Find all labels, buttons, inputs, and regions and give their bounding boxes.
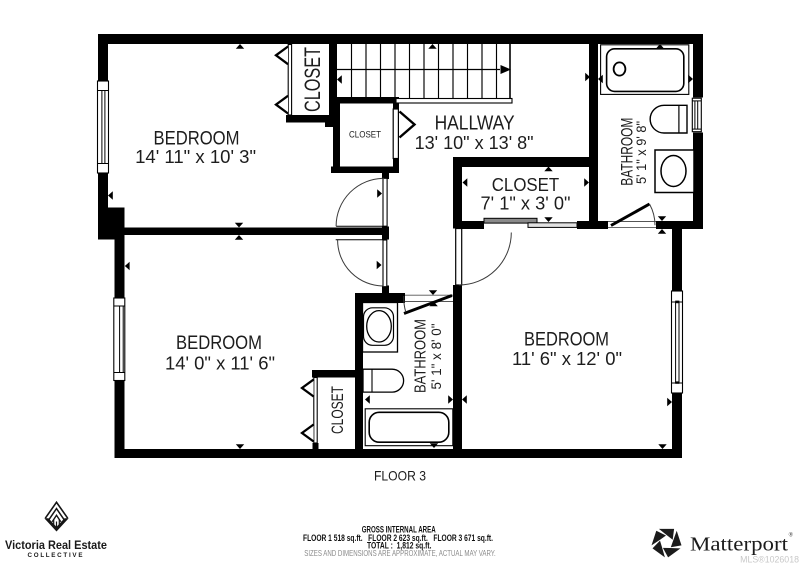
svg-text:CLOSET: CLOSET xyxy=(492,174,560,195)
svg-text:11' 6" x 12' 0": 11' 6" x 12' 0" xyxy=(512,349,622,369)
svg-text:CLOSET: CLOSET xyxy=(300,47,325,112)
svg-text:5' 1" x 9' 8": 5' 1" x 9' 8" xyxy=(633,121,649,184)
svg-text:14' 0" x 11' 6": 14' 0" x 11' 6" xyxy=(165,354,275,374)
svg-text:7' 1" x 3' 0": 7' 1" x 3' 0" xyxy=(481,194,571,214)
svg-text:SIZES AND DIMENSIONS ARE APPRO: SIZES AND DIMENSIONS ARE APPROXIMATE, AC… xyxy=(304,548,496,558)
svg-text:CLOSET: CLOSET xyxy=(329,386,347,434)
svg-text:13' 10" x 13' 8": 13' 10" x 13' 8" xyxy=(415,132,534,153)
svg-text:®: ® xyxy=(789,532,794,539)
svg-text:CLOSET: CLOSET xyxy=(349,130,381,140)
svg-text:Victoria Real Estate: Victoria Real Estate xyxy=(5,540,107,552)
svg-text:Matterport: Matterport xyxy=(690,534,789,556)
svg-text:14' 11" x 10' 3": 14' 11" x 10' 3" xyxy=(135,147,256,167)
svg-text:5' 1" x 8' 0": 5' 1" x 8' 0" xyxy=(429,323,444,389)
svg-text:FLOOR 3: FLOOR 3 xyxy=(374,468,426,484)
svg-text:C O L L E C T I V E: C O L L E C T I V E xyxy=(28,553,83,559)
svg-text:MLS®1026018: MLS®1026018 xyxy=(740,555,799,565)
svg-text:BATHROOM: BATHROOM xyxy=(412,319,429,393)
svg-text:BEDROOM: BEDROOM xyxy=(524,328,609,350)
svg-text:BEDROOM: BEDROOM xyxy=(176,332,262,354)
